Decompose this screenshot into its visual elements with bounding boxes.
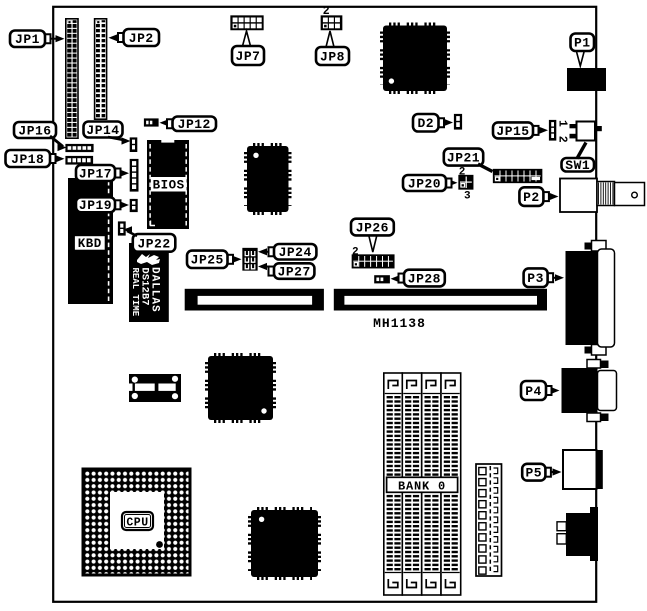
svg-text:JP2: JP2 bbox=[129, 31, 154, 46]
svg-text:JP28: JP28 bbox=[408, 271, 441, 286]
svg-text:SW1: SW1 bbox=[565, 158, 590, 173]
svg-text:2: 2 bbox=[323, 5, 330, 18]
svg-text:REAL TIME: REAL TIME bbox=[130, 268, 140, 317]
svg-text:P4: P4 bbox=[525, 384, 542, 399]
svg-text:BIOS: BIOS bbox=[153, 179, 185, 193]
svg-text:BANK 0: BANK 0 bbox=[398, 479, 446, 493]
svg-text:CPU: CPU bbox=[126, 517, 148, 530]
svg-text:MH1138: MH1138 bbox=[373, 316, 426, 331]
svg-text:JP17: JP17 bbox=[79, 166, 112, 181]
svg-text:JP18: JP18 bbox=[11, 152, 44, 167]
svg-text:JP25: JP25 bbox=[191, 253, 224, 268]
svg-text:P2: P2 bbox=[523, 190, 540, 205]
svg-text:JP27: JP27 bbox=[278, 264, 311, 279]
svg-text:JP1: JP1 bbox=[15, 32, 40, 47]
svg-text:D2: D2 bbox=[417, 116, 434, 131]
svg-text:JP7: JP7 bbox=[236, 49, 261, 64]
svg-text:JP8: JP8 bbox=[320, 49, 345, 64]
svg-text:JP20: JP20 bbox=[408, 176, 441, 191]
svg-text:JP14: JP14 bbox=[86, 123, 119, 138]
svg-text:P3: P3 bbox=[527, 271, 544, 286]
svg-text:JP15: JP15 bbox=[496, 124, 529, 139]
svg-text:3: 3 bbox=[464, 190, 471, 202]
svg-text:JP16: JP16 bbox=[18, 123, 51, 138]
svg-text:JP21: JP21 bbox=[447, 151, 480, 166]
svg-text:KBD: KBD bbox=[78, 237, 102, 251]
svg-text:JP24: JP24 bbox=[279, 245, 312, 260]
svg-text:2: 2 bbox=[459, 166, 466, 178]
svg-text:P1: P1 bbox=[574, 36, 591, 51]
svg-text:JP12: JP12 bbox=[178, 117, 211, 132]
svg-text:JP26: JP26 bbox=[356, 220, 389, 235]
svg-text:1 2: 1 2 bbox=[556, 120, 569, 144]
svg-text:JP22: JP22 bbox=[137, 236, 170, 251]
svg-text:P5: P5 bbox=[525, 466, 542, 481]
svg-text:2: 2 bbox=[352, 246, 359, 258]
svg-text:JP19: JP19 bbox=[79, 198, 112, 213]
